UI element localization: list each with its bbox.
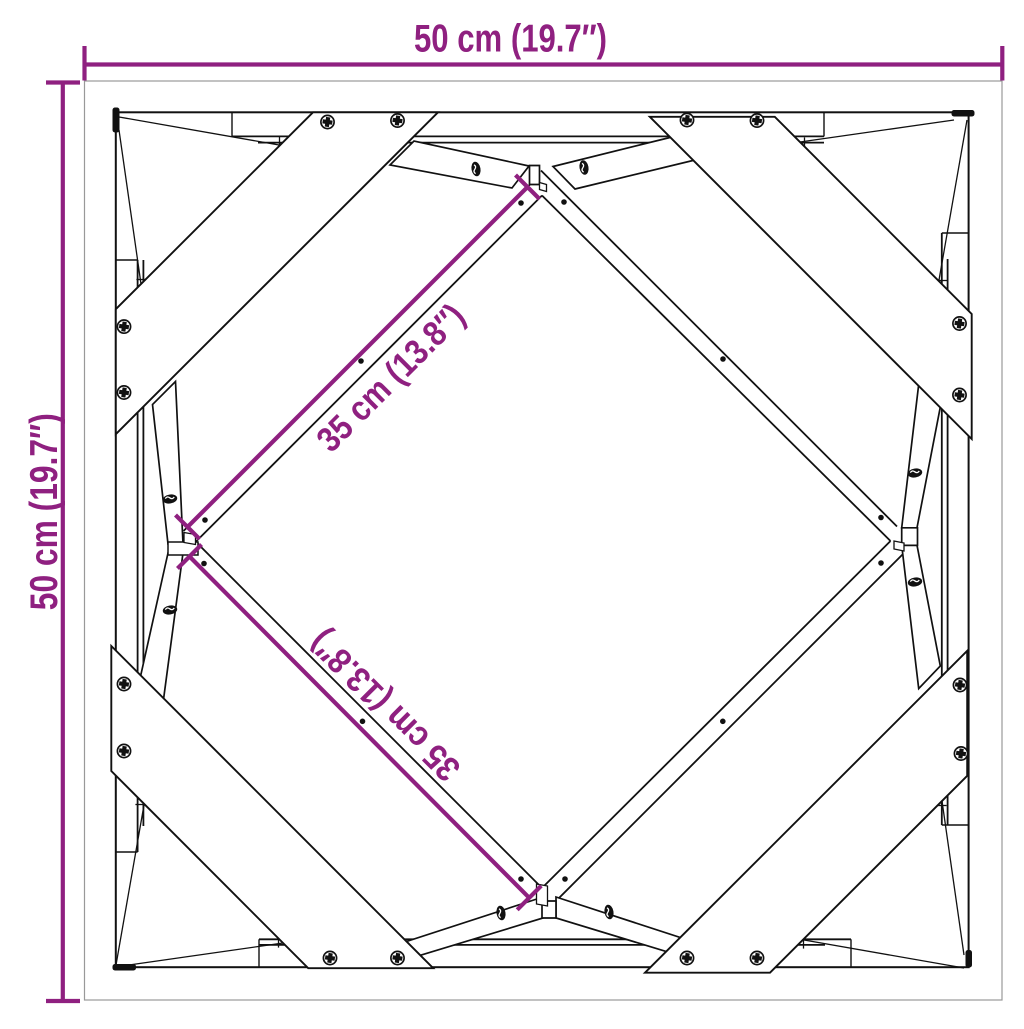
svg-text:50 cm (19.7″): 50 cm (19.7″) — [414, 18, 607, 61]
svg-text:50 cm (19.7″): 50 cm (19.7″) — [23, 413, 66, 610]
